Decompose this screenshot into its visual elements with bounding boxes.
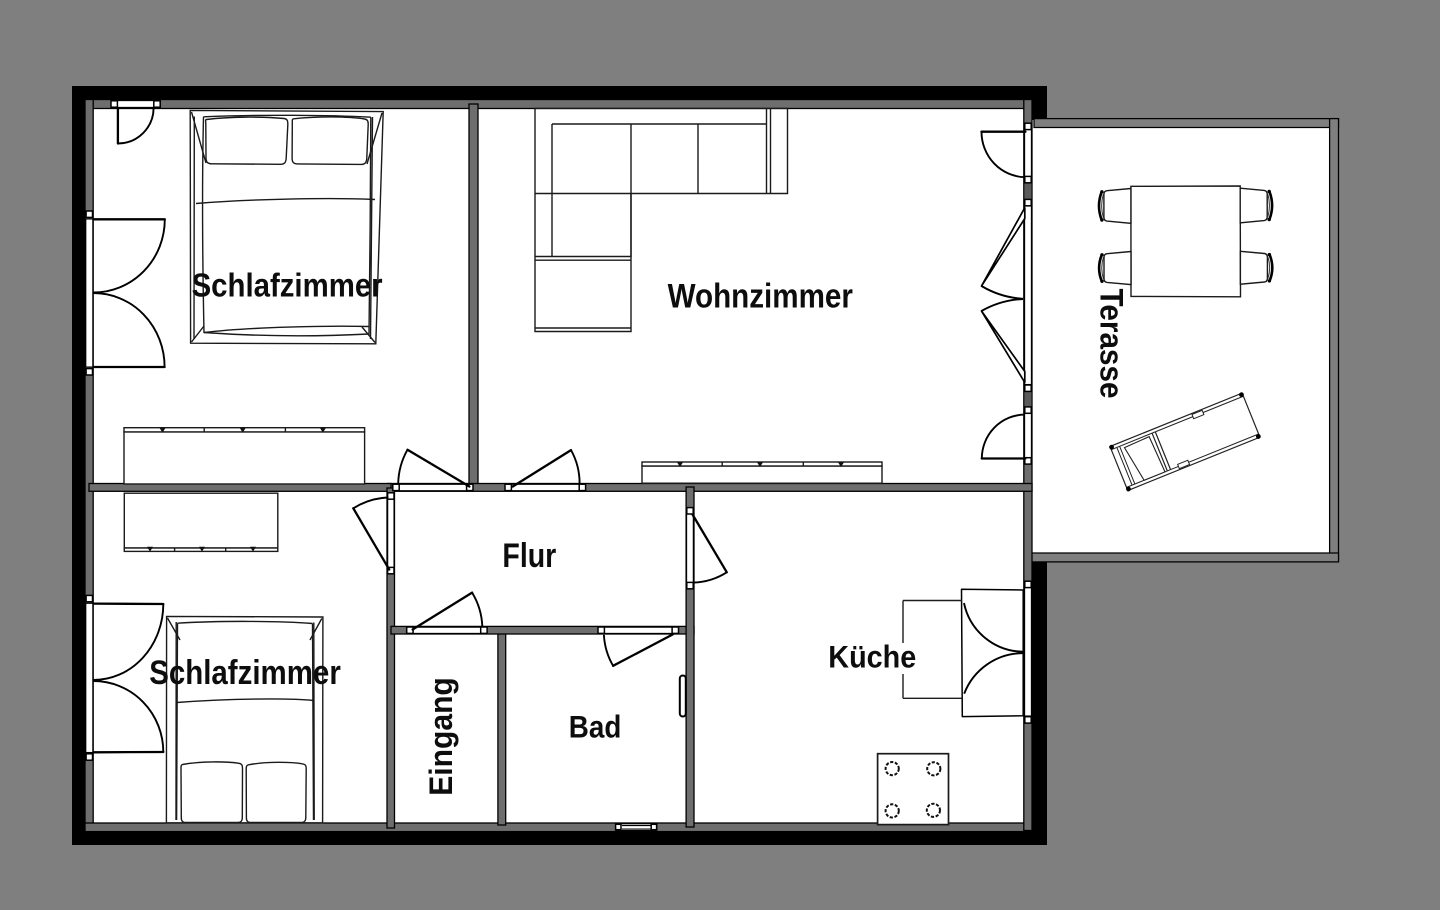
svg-text:Eingang: Eingang — [423, 677, 459, 796]
svg-text:Wohnzimmer: Wohnzimmer — [668, 278, 853, 316]
svg-text:Schlafzimmer: Schlafzimmer — [149, 654, 341, 692]
svg-text:Schlafzimmer: Schlafzimmer — [192, 266, 383, 303]
svg-text:Küche: Küche — [828, 639, 916, 675]
svg-text:Bad: Bad — [569, 709, 622, 745]
svg-text:Terasse: Terasse — [1093, 289, 1129, 399]
svg-text:Flur: Flur — [502, 537, 556, 575]
